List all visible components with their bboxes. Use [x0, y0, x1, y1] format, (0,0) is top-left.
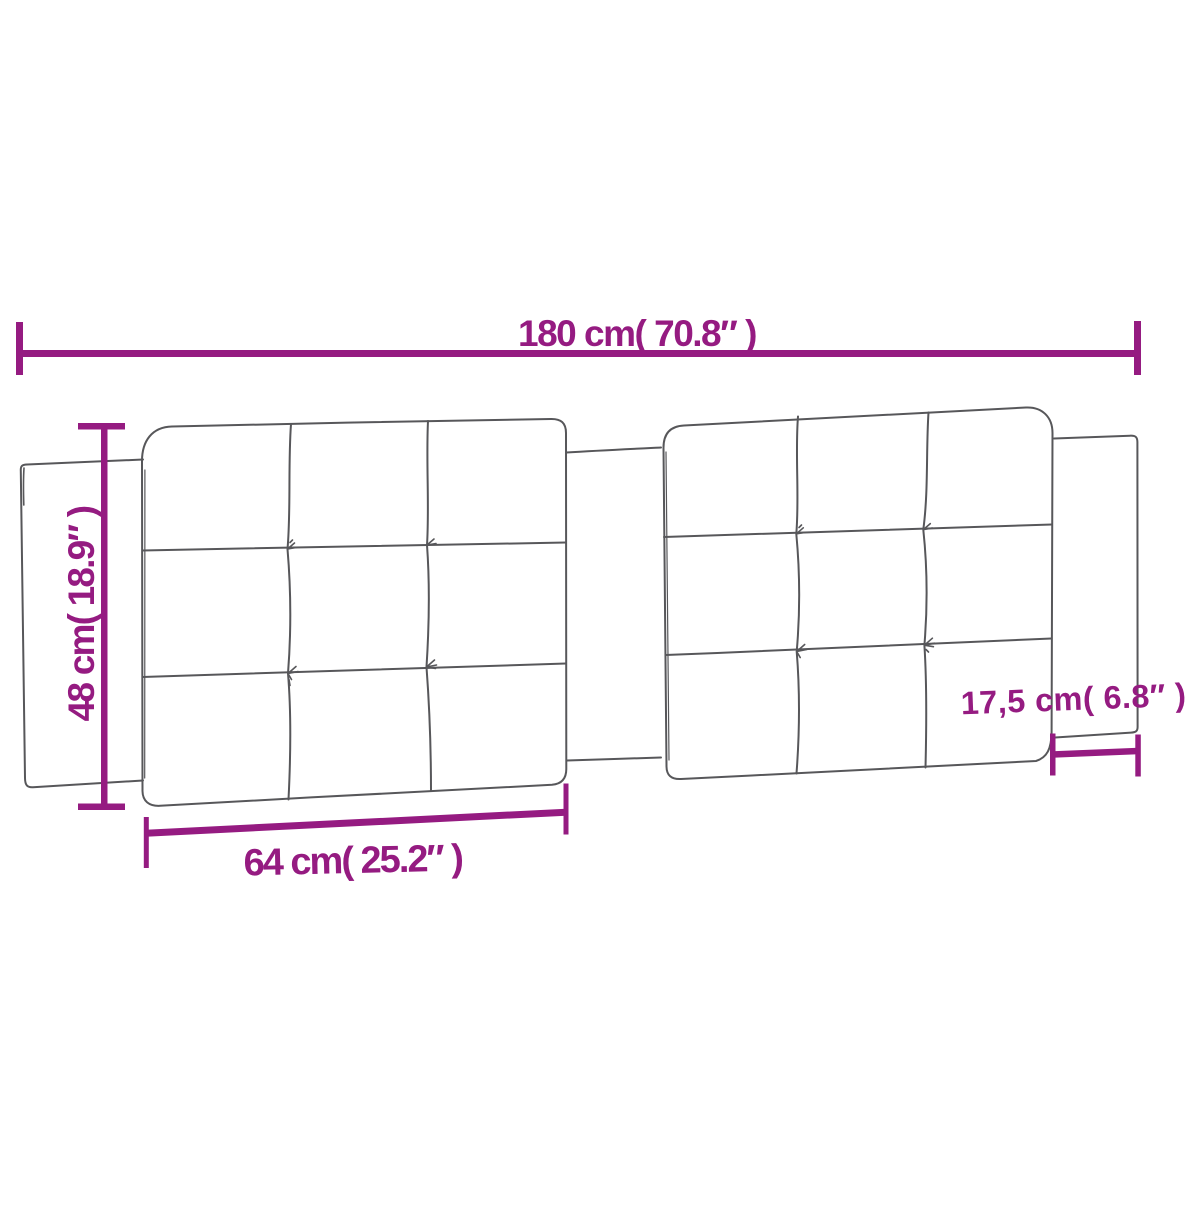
svg-text:180 cm( 70.8″ ): 180 cm( 70.8″ )	[518, 313, 756, 354]
svg-text:64 cm( 25.2″ ): 64 cm( 25.2″ )	[243, 838, 463, 885]
svg-text:48 cm( 18.9″ ): 48 cm( 18.9″ )	[61, 506, 102, 721]
